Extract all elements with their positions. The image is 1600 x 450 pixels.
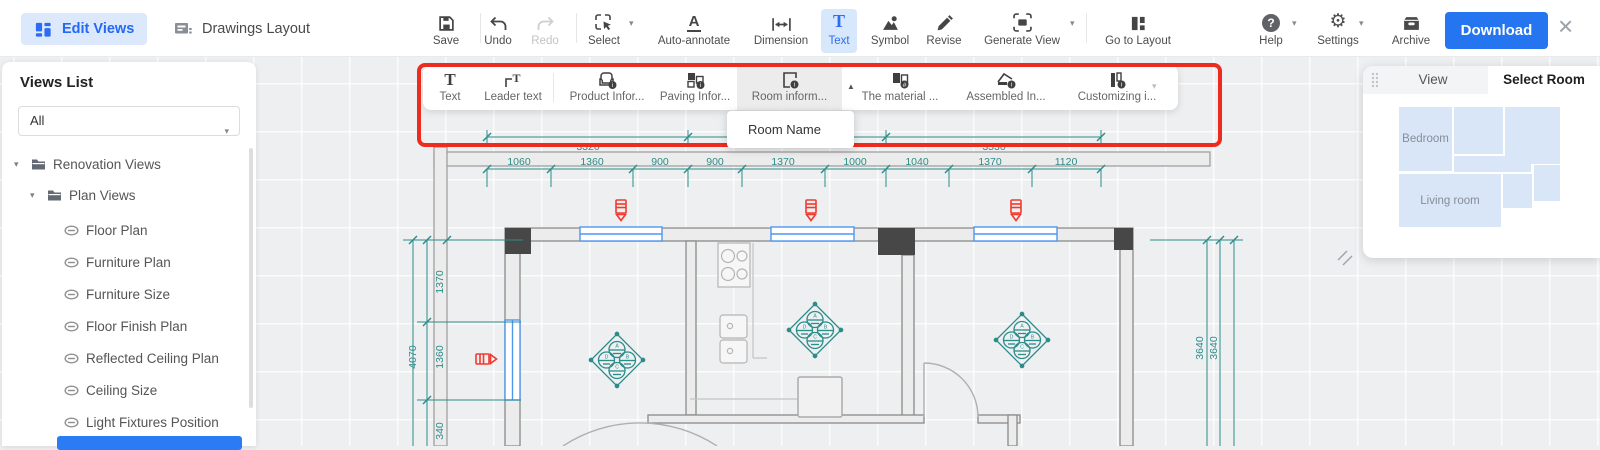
redo-icon <box>511 9 579 32</box>
floor-plan[interactable]: A B C D <box>380 120 1260 446</box>
room-info-caret-icon[interactable]: ▲ <box>847 82 855 91</box>
lamp-symbol[interactable] <box>994 312 1049 367</box>
select-caret-icon[interactable]: ▾ <box>629 18 634 29</box>
tree-leaf-label: Floor Plan <box>86 223 148 238</box>
filter-caret-icon: ▾ <box>224 117 229 145</box>
tab-drawings-layout[interactable]: Drawings Layout <box>160 13 323 45</box>
panel-header: View Select Room <box>1363 66 1600 94</box>
tree-leaf-label: Ceiling Size <box>86 383 157 398</box>
svg-text:T: T <box>513 71 521 85</box>
annotation-ribbon: T Text T Leader text i Product Infor... … <box>423 65 1178 110</box>
go-to-layout-icon <box>1093 9 1183 32</box>
close-icon[interactable]: × <box>1558 11 1573 42</box>
text-icon: T <box>430 69 470 90</box>
view-icon <box>64 417 79 428</box>
svg-text:#: # <box>903 82 907 89</box>
svg-text:i: i <box>793 82 794 88</box>
divider <box>1086 13 1087 43</box>
svg-text:900: 900 <box>706 156 724 168</box>
svg-text:i: i <box>1121 82 1122 88</box>
drawings-layout-icon <box>173 19 193 39</box>
view-icon <box>64 257 79 268</box>
tree-caret-icon[interactable]: ▾ <box>14 159 24 170</box>
product-info-icon: i <box>562 69 652 90</box>
panel-resize-handle[interactable] <box>1337 250 1353 271</box>
help-caret-icon[interactable]: ▾ <box>1292 18 1297 29</box>
svg-text:4070: 4070 <box>407 345 419 369</box>
svg-text:340: 340 <box>434 422 446 440</box>
minimap-room[interactable] <box>1534 165 1560 201</box>
svg-text:900: 900 <box>651 156 669 168</box>
room-label: Bedroom <box>1402 133 1449 145</box>
svg-text:1360: 1360 <box>434 345 446 369</box>
view-select-room-panel: View Select Room Bedroom Living room <box>1363 66 1600 258</box>
generate-view-caret-icon[interactable]: ▾ <box>1070 18 1075 29</box>
drawings-layout-label: Drawings Layout <box>202 21 310 37</box>
ribbon-paving-info-button[interactable]: i Paving Infor... <box>652 69 738 103</box>
generate-view-button[interactable]: Generate View <box>967 9 1077 47</box>
lamp-symbol[interactable] <box>589 332 644 387</box>
drag-handle-icon[interactable] <box>1371 72 1379 88</box>
assembled-info-icon: i <box>962 69 1050 90</box>
folder-icon <box>47 189 62 201</box>
minimap-room[interactable] <box>1454 107 1503 154</box>
download-button[interactable]: Download <box>1445 12 1548 49</box>
tree-leaf-label: Light Fixtures Position <box>86 415 219 430</box>
settings-caret-icon[interactable]: ▾ <box>1359 18 1364 29</box>
top-toolbar: Edit Views Drawings Layout Save Undo Red… <box>0 0 1600 57</box>
tree-node-plan-views[interactable]: ▾ Plan Views <box>30 185 136 205</box>
minimap-room-living[interactable]: Living room <box>1399 174 1501 227</box>
svg-text:1370: 1370 <box>434 270 446 294</box>
tree-leaf-light-fixtures-position[interactable]: Light Fixtures Position <box>64 412 219 432</box>
ribbon-product-info-button[interactable]: i Product Infor... <box>562 69 652 103</box>
air-outlet-symbol[interactable] <box>476 354 497 364</box>
ribbon-more-caret-icon[interactable]: ▾ <box>1152 81 1157 92</box>
ribbon-text-button[interactable]: T Text <box>430 69 470 103</box>
view-icon <box>64 353 79 364</box>
tree-leaf-label: Furniture Plan <box>86 255 171 270</box>
svg-text:i: i <box>1011 82 1012 88</box>
tree-leaf-reflected-ceiling-plan[interactable]: Reflected Ceiling Plan <box>64 348 219 368</box>
go-to-layout-button[interactable]: Go to Layout <box>1093 9 1183 47</box>
tree-leaf-furniture-size[interactable]: Furniture Size <box>64 284 170 304</box>
view-icon <box>64 385 79 396</box>
tree-leaf-floor-plan[interactable]: Floor Plan <box>64 220 148 240</box>
ribbon-leader-text-button[interactable]: T Leader text <box>482 69 544 103</box>
views-list-panel: Views List All ▾ ▾ Renovation Views ▾ Pl… <box>2 62 256 446</box>
tab-select-room[interactable]: Select Room <box>1488 66 1600 94</box>
folder-icon <box>31 158 46 170</box>
view-icon <box>64 225 79 236</box>
view-icon <box>64 321 79 332</box>
ribbon-room-info-button[interactable]: i Room inform... <box>737 65 842 110</box>
material-info-icon: # <box>856 69 944 90</box>
svg-text:1060: 1060 <box>507 156 531 168</box>
edit-views-label: Edit Views <box>62 21 134 37</box>
lamp-symbol[interactable] <box>787 302 842 357</box>
redo-button[interactable]: Redo <box>511 9 579 47</box>
tree-leaf-selected[interactable] <box>57 436 242 450</box>
view-icon <box>64 289 79 300</box>
tree-node-renovation-views[interactable]: ▾ Renovation Views <box>14 154 161 174</box>
svg-text:1000: 1000 <box>843 156 867 168</box>
minimap-room[interactable] <box>1503 174 1532 208</box>
tree-node-label: Renovation Views <box>53 157 161 172</box>
room-info-icon: i <box>737 69 842 90</box>
select-icon <box>570 9 638 32</box>
svg-text:i: i <box>700 83 701 89</box>
customizing-info-icon: i <box>1073 69 1161 90</box>
edit-views-icon <box>34 20 53 39</box>
air-outlet-symbol[interactable] <box>1011 200 1021 221</box>
svg-text:3640: 3640 <box>1208 336 1220 360</box>
views-filter-select[interactable]: All ▾ <box>18 106 240 136</box>
text-tool-button[interactable]: T Text <box>821 9 857 53</box>
room-label: Living room <box>1420 195 1479 207</box>
auto-annotate-icon: A <box>652 9 736 32</box>
select-button[interactable]: Select <box>570 9 638 47</box>
svg-text:1040: 1040 <box>905 156 929 168</box>
views-list-title: Views List <box>20 74 93 91</box>
windows[interactable] <box>505 227 1057 400</box>
views-filter-value: All <box>30 113 44 128</box>
archive-button[interactable]: Archive <box>1377 9 1445 47</box>
svg-text:1360: 1360 <box>580 156 604 168</box>
tree-leaf-label: Furniture Size <box>86 287 170 302</box>
air-outlet-symbol[interactable] <box>616 200 626 221</box>
leader-text-icon: T <box>482 69 544 90</box>
archive-icon <box>1377 9 1445 32</box>
svg-text:3320: 3320 <box>576 141 600 153</box>
svg-text:3640: 3640 <box>1194 336 1206 360</box>
tree-leaf-floor-finish-plan[interactable]: Floor Finish Plan <box>64 316 187 336</box>
paving-info-icon: i <box>652 69 738 90</box>
sidebar-scrollbar[interactable] <box>249 148 253 408</box>
dimension-icon <box>747 9 815 32</box>
tab-view[interactable]: View <box>1393 66 1473 94</box>
tree-node-label: Plan Views <box>69 188 136 203</box>
tree-caret-icon[interactable]: ▾ <box>30 190 40 201</box>
svg-text:i: i <box>612 83 613 89</box>
minimap-room-bedroom[interactable]: Bedroom <box>1399 107 1452 171</box>
generate-view-icon <box>967 9 1077 32</box>
tab-edit-views[interactable]: Edit Views <box>21 13 147 45</box>
svg-text:1120: 1120 <box>1055 156 1078 168</box>
svg-text:3530: 3530 <box>982 141 1006 153</box>
doors[interactable] <box>563 363 978 446</box>
svg-text:1370: 1370 <box>978 156 1002 168</box>
svg-text:1370: 1370 <box>771 156 795 168</box>
air-outlet-symbol[interactable] <box>806 200 816 221</box>
minimap-room[interactable] <box>1454 156 1531 172</box>
ribbon-assembled-info-button[interactable]: i Assembled In... <box>962 69 1050 103</box>
tree-leaf-label: Floor Finish Plan <box>86 319 187 334</box>
auto-annotate-button[interactable]: A Auto-annotate <box>652 9 736 47</box>
tree-leaf-furniture-plan[interactable]: Furniture Plan <box>64 252 171 272</box>
room-name-menu-item[interactable]: Room Name <box>727 111 854 148</box>
tree-leaf-ceiling-size[interactable]: Ceiling Size <box>64 380 157 400</box>
dimension-button[interactable]: Dimension <box>747 9 815 47</box>
ribbon-customizing-info-button[interactable]: i Customizing i... <box>1073 69 1161 103</box>
tree-leaf-label: Reflected Ceiling Plan <box>86 351 219 366</box>
divider <box>553 73 554 102</box>
text-tool-icon: T <box>821 9 857 32</box>
ribbon-material-info-button[interactable]: # The material ... <box>856 69 944 103</box>
